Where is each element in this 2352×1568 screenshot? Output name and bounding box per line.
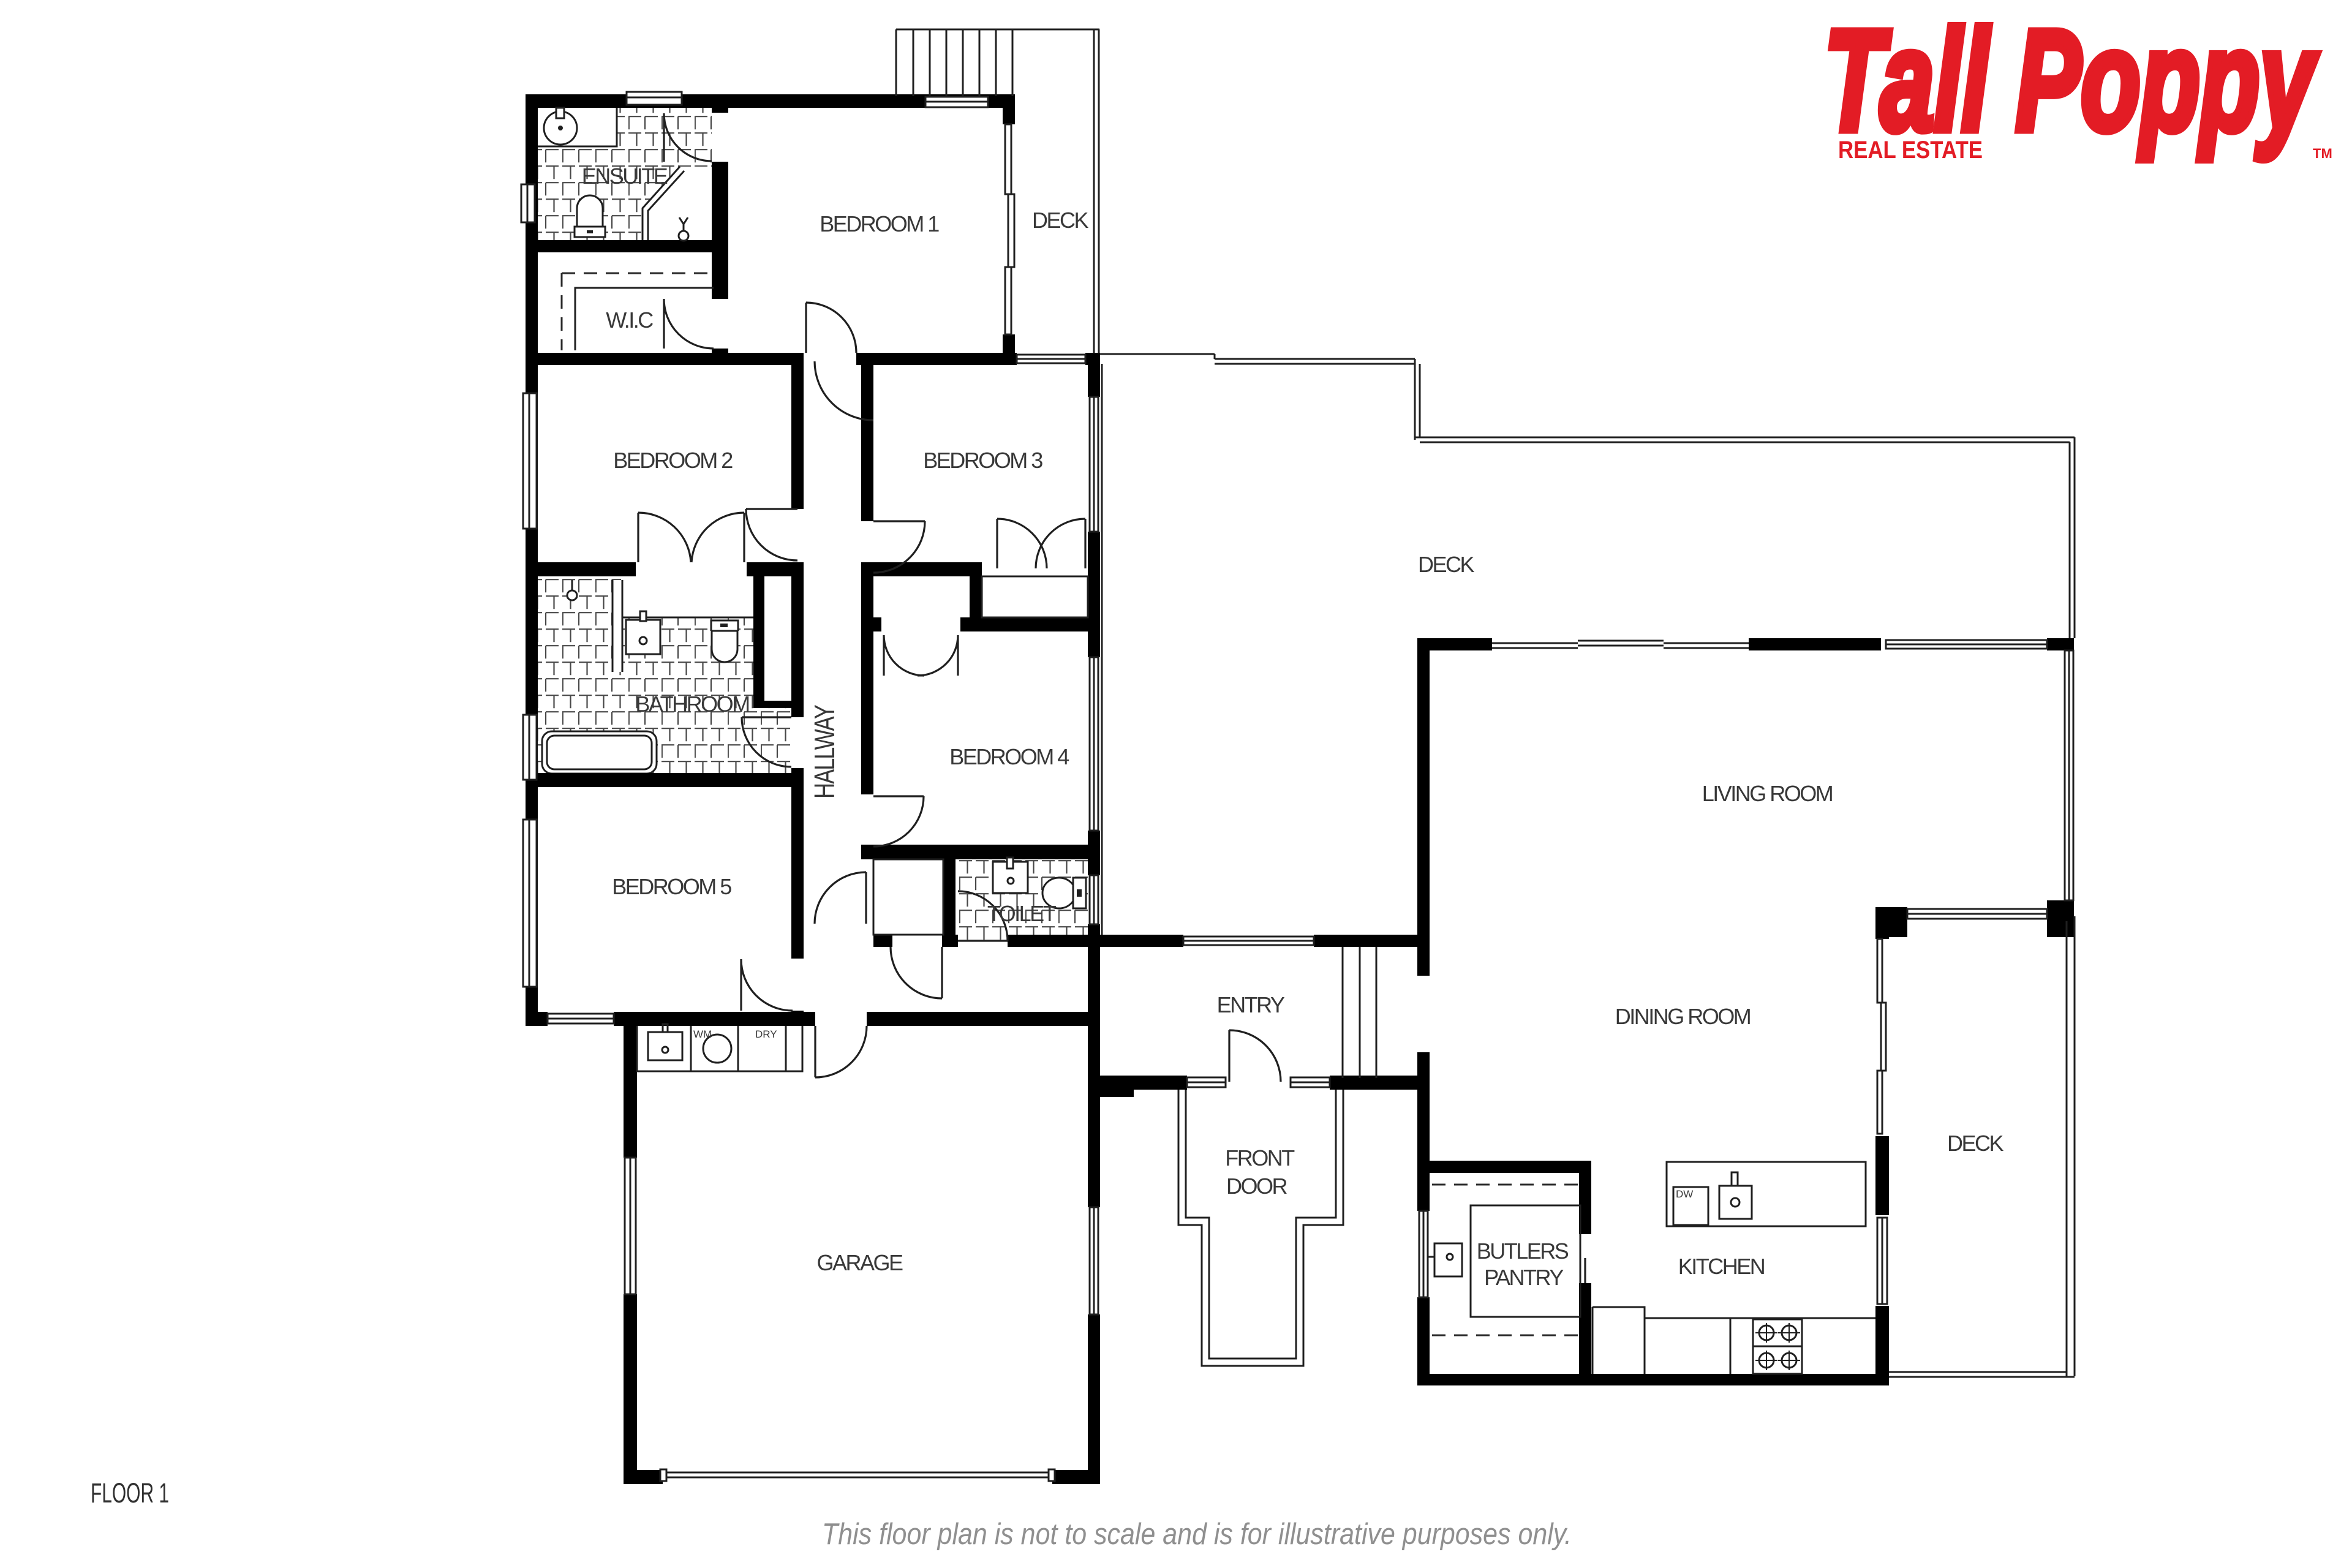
svg-text:WM: WM — [693, 1028, 712, 1040]
svg-text:W.I.C: W.I.C — [606, 307, 653, 333]
svg-text:HALLWAY: HALLWAY — [809, 705, 840, 799]
svg-text:BEDROOM 2: BEDROOM 2 — [613, 448, 733, 473]
svg-text:TOILET: TOILET — [987, 901, 1057, 926]
svg-text:TM: TM — [2313, 146, 2332, 161]
svg-text:DRY: DRY — [755, 1028, 777, 1040]
svg-text:REAL ESTATE: REAL ESTATE — [1838, 137, 1983, 164]
svg-text:BEDROOM 1: BEDROOM 1 — [820, 211, 939, 236]
svg-text:PANTRY: PANTRY — [1484, 1265, 1564, 1290]
svg-text:FRONT: FRONT — [1225, 1145, 1295, 1170]
svg-text:BATHROOM: BATHROOM — [635, 692, 749, 717]
svg-text:DW: DW — [1676, 1188, 1693, 1200]
svg-text:BEDROOM 5: BEDROOM 5 — [612, 874, 731, 899]
svg-text:DECK: DECK — [1947, 1131, 2004, 1156]
svg-text:DINING ROOM: DINING ROOM — [1615, 1004, 1751, 1029]
svg-text:FLOOR 1: FLOOR 1 — [91, 1477, 169, 1509]
svg-text:ENSUITE: ENSUITE — [582, 164, 668, 189]
svg-text:DECK: DECK — [1032, 208, 1089, 233]
svg-text:BUTLERS: BUTLERS — [1477, 1238, 1569, 1264]
svg-text:LIVING ROOM: LIVING ROOM — [1702, 781, 1833, 806]
svg-text:This floor plan is not to scal: This floor plan is not to scale and is f… — [822, 1518, 1572, 1551]
svg-text:DOOR: DOOR — [1226, 1174, 1287, 1199]
svg-text:BEDROOM 4: BEDROOM 4 — [949, 744, 1069, 769]
svg-text:KITCHEN: KITCHEN — [1678, 1254, 1765, 1279]
svg-text:GARAGE: GARAGE — [816, 1250, 903, 1275]
svg-text:ENTRY: ENTRY — [1217, 992, 1285, 1017]
svg-text:BEDROOM 3: BEDROOM 3 — [923, 448, 1042, 473]
svg-text:DECK: DECK — [1418, 552, 1475, 577]
